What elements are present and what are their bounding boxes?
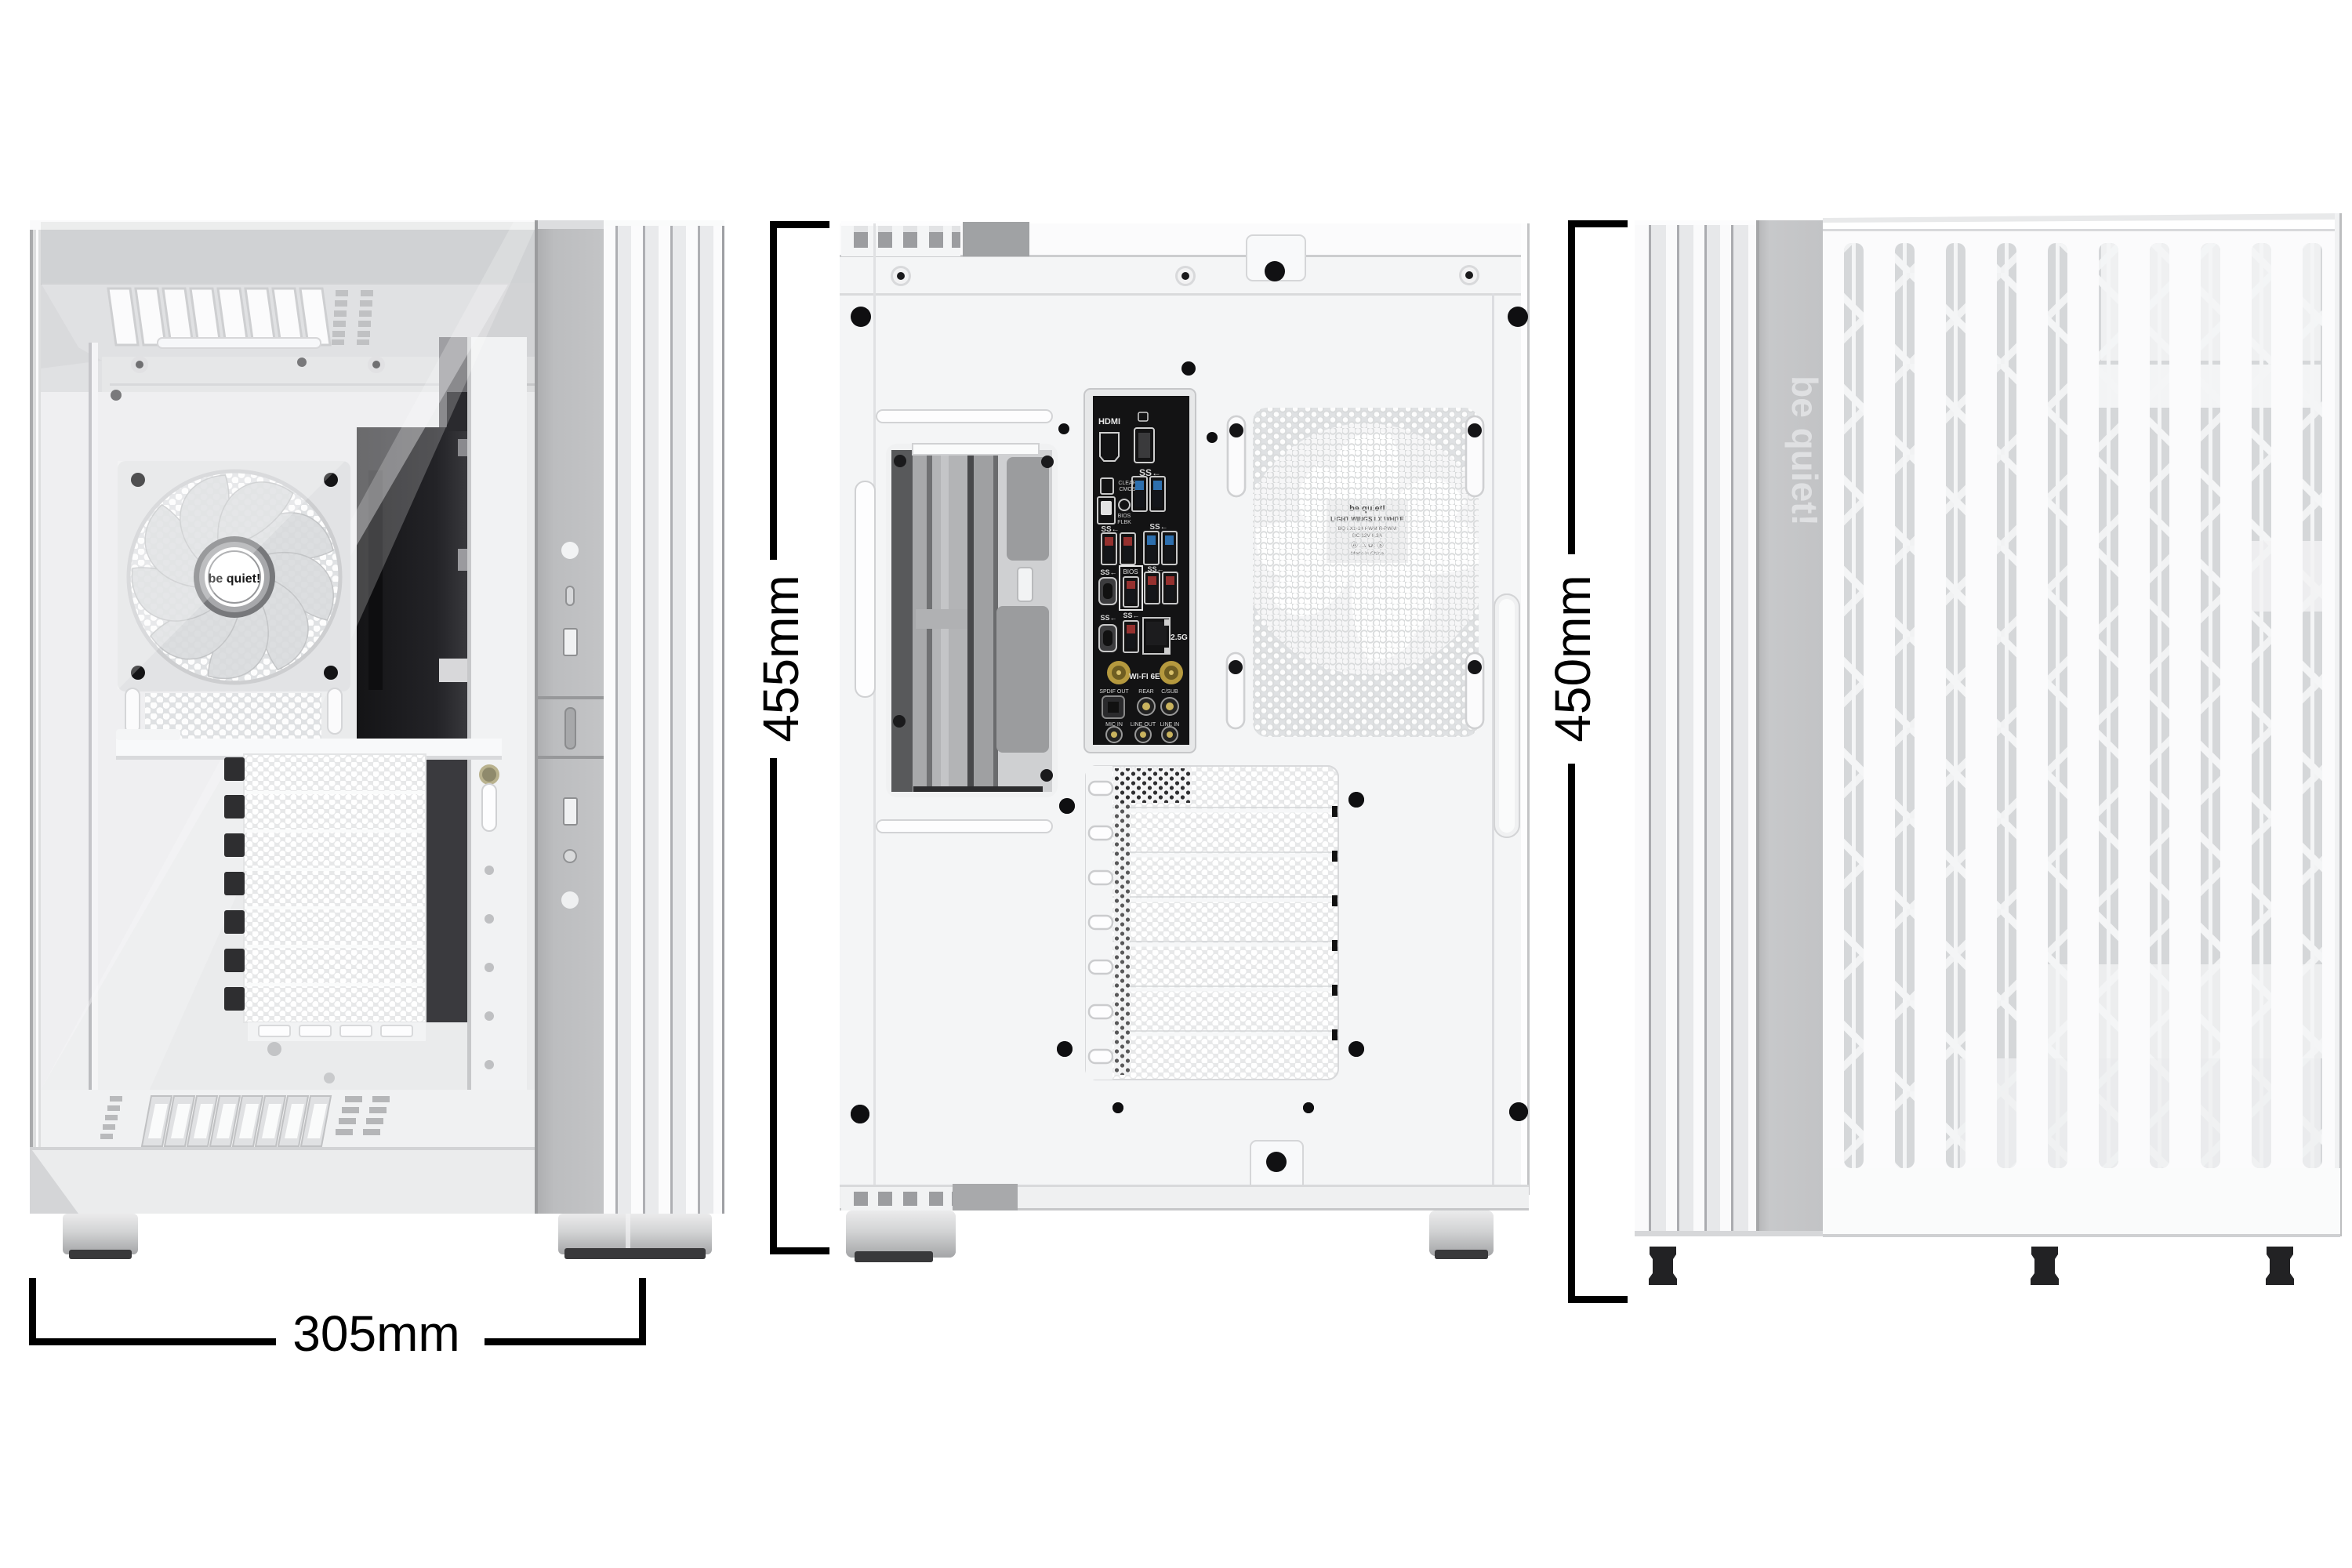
svg-text:BIOS: BIOS <box>1118 514 1131 519</box>
svg-text:be quiet!: be quiet! <box>1784 376 1825 526</box>
svg-text:BIOS: BIOS <box>1123 568 1138 575</box>
svg-text:SS←: SS← <box>1123 612 1139 619</box>
svg-text:REAR: REAR <box>1138 689 1153 695</box>
svg-text:WI-FI 6E: WI-FI 6E <box>1129 673 1160 681</box>
svg-text:305mm: 305mm <box>292 1305 459 1362</box>
svg-text:SPDIF OUT: SPDIF OUT <box>1099 689 1129 695</box>
svg-text:CLEAR: CLEAR <box>1118 481 1136 486</box>
svg-text:450mm: 450mm <box>1544 575 1601 742</box>
svg-text:2.5G: 2.5G <box>1171 633 1188 642</box>
svg-text:FLBK: FLBK <box>1117 520 1131 525</box>
svg-text:SS←: SS← <box>1100 568 1116 576</box>
svg-text:CMOS: CMOS <box>1120 487 1136 492</box>
svg-text:SS←: SS← <box>1100 614 1116 622</box>
svg-text:HDMI: HDMI <box>1098 417 1120 426</box>
svg-text:C/SUB: C/SUB <box>1161 689 1178 695</box>
svg-text:SS←: SS← <box>1149 523 1167 532</box>
svg-text:455mm: 455mm <box>753 575 809 742</box>
